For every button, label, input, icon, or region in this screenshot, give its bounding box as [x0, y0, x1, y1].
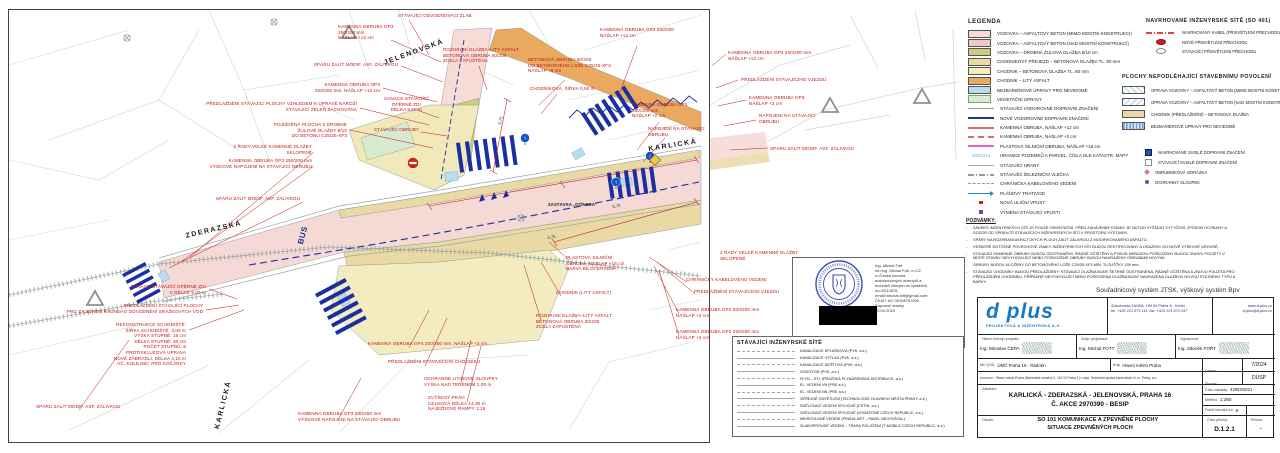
- legend-label: CHODNÍK (PŘEDLÁŽDĚNÍ) – BETONOVÁ DLAŽBA: [1151, 112, 1249, 117]
- note-text: SPÁRY NA ROZHRANÍ ASFALTOVÝCH PLOCH ZALÍ…: [973, 238, 1148, 243]
- annotation: 2 ŘADY VELKÉ KAMENNÉ DLAŽBY SKLOPENÉ: [720, 250, 798, 261]
- annotation: KAMENNÁ OBRUBA OP3 200/250 mm VÝŠKOVÉ NA…: [298, 411, 400, 422]
- legend-row: NOVÁ ULIČNÍ VPUST: [968, 198, 1132, 207]
- format-count-value: 8: [1236, 408, 1238, 413]
- stage-label-cell: Stupeň:: [1203, 372, 1243, 385]
- swatch-mastic-icon: [968, 77, 991, 85]
- proposed-cable-line-icon: [1146, 32, 1176, 34]
- order-number-value: 42063/2021: [1230, 387, 1252, 392]
- swatch-repair-asphalt-bridge-icon: [1122, 98, 1145, 106]
- annotation: KAMENNÁ OBRUBA OP4 200/250 mm, NÁŠLAP +2…: [368, 341, 487, 347]
- existing-vertical-sign-icon: [1145, 159, 1152, 166]
- no-entry-sign-icon: [408, 158, 418, 168]
- legend-label: HRANICE POZEMKŮ A PARCEL, ČÍSLA DLE KATA…: [1000, 153, 1128, 158]
- utility-line-icon: [737, 351, 795, 352]
- annotation: KAMENNÁ OBRUBA OP3 250/200 mm NÁŠLAP +2 …: [632, 102, 687, 119]
- company-phones: tel. +420 221 873 111, fax. +420 221 873…: [1111, 309, 1209, 314]
- designer-cell: Zodp. projektant: Ing. Michal FOTT: [1077, 335, 1176, 359]
- utility-line-icon: [737, 358, 795, 359]
- engineer-stamp-box: Ing. Michal Fott cn=Ing. Michal Fott, c=…: [792, 257, 965, 348]
- swatch-crossing-icon: [968, 58, 991, 66]
- signs-legend-panel: NAVRHOVANÉ SVISLÉ DOPRAVNÍ ZNAČENÍ STÁVA…: [1143, 147, 1245, 187]
- swatch-vegetation-icon: [968, 95, 991, 103]
- legend-row: STÁVAJÍCÍ SVISLÉ DOPRAVNÍ ZNAČENÍ: [1143, 157, 1245, 167]
- copy-number-cell: Č. kopie:: [1247, 406, 1275, 416]
- protective-bollard-icon: [1145, 180, 1149, 184]
- legend-row: CHRÁNIČKA KABELOVÉHO VEDENÍ: [968, 179, 1132, 188]
- author-cell: Vypracoval: Ing. Zdeněk FOŘT: [1176, 335, 1275, 359]
- company-address-cell: Sokolovská 16/45A, 186 00 Praha 8 - Karl…: [1108, 298, 1213, 335]
- scale-label: Měřítko:: [1203, 397, 1220, 403]
- legend-row: NAVRHOVANÉ SVISLÉ DOPRAVNÍ ZNAČENÍ: [1143, 147, 1245, 157]
- line-existing-edge-icon: [968, 165, 994, 166]
- title-block: d plus PROJEKTOVÁ A INŽENÝRSKÁ A.S. Soko…: [977, 297, 1274, 438]
- utility-line-icon: [737, 405, 795, 406]
- annotation: SPÁRU ZALÍT MODIF. ASF. ZÁLIVKOU: [216, 196, 300, 202]
- legend-row: 2905/214HRANICE POZEMKŮ A PARCEL, ČÍSLA …: [968, 151, 1132, 160]
- legend-panel: LEGENDA VOZOVKA – ASFALTOVÝ BETON (MIMO …: [968, 18, 1132, 217]
- legend-label: PLÁŇOVÝ TRATIVOD: [1000, 191, 1045, 196]
- scale-value: 1:250: [1220, 397, 1232, 402]
- line-railway-icon: [968, 174, 994, 176]
- plan-sheet: ↑ ↑ ↑: [0, 0, 1280, 453]
- existing-networks-title: STÁVAJÍCÍ INŽENÝRSKÉ SÍTĚ: [737, 340, 959, 346]
- format-count-label: Počet formátů A4:: [1203, 407, 1236, 413]
- utility-label: SDĚLOVACÍ VEDENÍ SPOJOVÉ (VODAFONE CZECH…: [800, 411, 923, 415]
- swatch-granite-icon: [968, 48, 991, 56]
- content-line1: SO 101 KOMUNIKACE A ZPEVNĚNÉ PLOCHY: [980, 417, 1200, 425]
- utility-label: MIKROVLNNÉ VEDENÍ (PRAHA.NET – PAVEL NEC…: [800, 417, 905, 421]
- annotation: PŘEDLÁŽDĚNÍ STÁVAJÍCÍHO CHODNÍKU: [388, 359, 480, 365]
- format-count-cell: Počet formátů A4: 8: [1203, 406, 1247, 416]
- svg-text:↑: ↑: [615, 180, 618, 186]
- utility-row: KANALIZACE VÝTLAK (PVK, a.s.): [737, 355, 959, 362]
- legend-row: CHODNÍK – BETONOVÁ DLAŽBA TL. 60 mm: [968, 67, 1132, 76]
- utility-line-icon: [737, 364, 795, 365]
- utility-label: EL. VEDENÍ NN (PRE a.s.): [800, 390, 846, 394]
- utility-row: MIKROVLNNÉ VEDENÍ (PRAHA.NET – PAVEL NEC…: [737, 416, 959, 423]
- municipality-value: ÚMČ Praha 16 - Radotín: [997, 363, 1045, 368]
- legend-label: STÁVAJÍCÍ SVISLÉ DOPRAVNÍ ZNAČENÍ: [1158, 160, 1237, 165]
- designer-name: Ing. Michal FOTT: [1079, 346, 1114, 351]
- utility-line-icon: [737, 419, 795, 420]
- annotation: ZVÝŠENÝ PRÁH CELKOVÁ DÉLKA 14,30 m NÁJEZ…: [428, 395, 486, 412]
- annotation: PŘEDLÁŽDĚNÍ STÁVAJÍCÍHO VJEZDU: [694, 289, 779, 295]
- legend-label: BEZBARIÉROVÉ ÚPRAVY PRO NEVIDOMÉ: [1151, 124, 1235, 129]
- blue-arrow-sign-icon: ↑: [521, 134, 530, 146]
- revision-label: Revize:: [1249, 417, 1273, 423]
- line-new-marking-icon: [968, 117, 994, 119]
- municipality-cell: MÚ (OÚ): ÚMČ Praha 16 - Radotín: [978, 359, 1111, 372]
- note-item: -STÁVAJÍCÍ KAMENNÉ OBRUBY BUDOU ODSTRANĚ…: [966, 252, 1236, 261]
- legend-row: VOZOVKA – ASFALTOVÝ BETON (NAD MOSTNÍ KO…: [968, 38, 1132, 47]
- legend-label: STÁVAJÍCÍ ŽELEZNIČNÍ VLEČKA: [1000, 172, 1069, 177]
- content-cell: Obsah: SO 101 KOMUNIKACE A ZPEVNĚNÉ PLOC…: [978, 416, 1203, 437]
- annotation: KAMENNÁ OBRUBA OP3 250/200 mm VÝŠKOVÉ NA…: [210, 158, 312, 169]
- legend-label: VOZOVKA – DROBNÁ ŽULOVÁ DLAŽBA 8/10 cm: [997, 50, 1098, 55]
- utility-row: KANALIZACE DEŠŤOVÁ (PVK, a.s.): [737, 362, 959, 369]
- utility-row: EL. VEDENÍ VN (PRE a.s.): [737, 382, 959, 389]
- bus-stop-label: ZASTÁVKA „OTÍNSKÁ“: [548, 202, 597, 207]
- chief-engineer-name: Ing. Miroslav ČEPA: [980, 346, 1019, 351]
- legend-row: KAMENNÁ OBRUBA, NÁŠLAP +2 cm: [968, 132, 1132, 141]
- utility-line-icon: [737, 412, 795, 413]
- swatch-tactile-repair-icon: [1122, 122, 1145, 130]
- stage-value: DUSP: [1252, 375, 1266, 381]
- legend-row: NOVÉ PŘISVĚTLENÍ PŘECHODU: [1146, 37, 1280, 46]
- municipality-label: MÚ (OÚ):: [978, 362, 997, 368]
- swatch-tactile-icon: [968, 86, 991, 94]
- company-logo-cell: d plus PROJEKTOVÁ A INŽENÝRSKÁ A.S.: [978, 298, 1108, 335]
- utility-line-icon: [737, 392, 795, 393]
- legend-label: NOVÉ PŘISVĚTLENÍ PŘECHODU: [1182, 40, 1247, 45]
- no-permit-panel: PLOCHY NEPODLÉHAJÍCÍ STAVEBNÍMU POVOLENÍ…: [1122, 74, 1280, 132]
- line-drain-arrow-icon: [968, 190, 994, 197]
- legend-label: OPRAVA VOZOVKY – ASFALTOVÝ BETON (NAD MO…: [1151, 100, 1280, 105]
- new-inlet-icon: [968, 199, 994, 206]
- utility-line-icon: [737, 385, 795, 386]
- date-value: 7/2024: [1251, 362, 1266, 368]
- legend-row: STÁVAJÍCÍ HRANY: [968, 160, 1132, 169]
- utility-label: KANALIZACE VÝTLAK (PVK, a.s.): [800, 356, 859, 360]
- proposed-networks-panel: NAVRHOVANÉ INŽENÝRSKÉ SÍTĚ (SO 401) NAVR…: [1146, 18, 1280, 56]
- legend-label: CHRÁNIČKA KABELOVÉHO VEDENÍ: [1000, 181, 1076, 186]
- legend-row: OBRUBNÍKOVÁ ODRAZKA: [1143, 167, 1245, 177]
- legend-label: OPRAVA VOZOVKY – ASFALTOVÝ BETON (MIMO M…: [1151, 88, 1280, 93]
- legend-row: BEZBARIÉROVÉ ÚPRAVY PRO NEVIDOMÉ: [968, 85, 1132, 94]
- annotation: KAMENNÁ OBRUBA OP3 250/200 mm NÁŠLAP +2 …: [676, 329, 759, 340]
- date-value-cell: 7/2024: [1243, 359, 1275, 372]
- legend-title: LEGENDA: [968, 18, 1132, 25]
- utility-row: KANALIZACE SPLAŠKOVÁ (PVK, a.s.): [737, 348, 959, 355]
- signature-scribble: [1219, 342, 1249, 354]
- annotation: SANACE STÁVAJÍCÍ OPĚRNÉ ZDI V DÉLCE 5,00…: [131, 284, 206, 295]
- region-label: Kraj:: [1111, 362, 1122, 368]
- note-text: OBRUBY BUDOU ULOŽENY DO BETONOVÉHO LOŽE …: [973, 263, 1140, 268]
- legend-row: BEZBARIÉROVÉ ÚPRAVY PRO NEVIDOMÉ: [1122, 120, 1280, 132]
- legend-label: BEZBARIÉROVÉ ÚPRAVY PRO NEVIDOMÉ: [997, 88, 1088, 93]
- project-title-line2: Č. AKCE 2970390 - BESIP: [980, 401, 1200, 410]
- signature-scribble: [1022, 342, 1052, 354]
- legend-row: OCHRANNÝ SLOUPEK: [1143, 177, 1245, 187]
- new-vertical-sign-icon: [1145, 149, 1152, 156]
- note-text: STÁVAJÍCÍ CHODNÍKY BUDOU PŘEDLÁŽDĚNY: ST…: [973, 270, 1236, 284]
- swatch-asphalt-icon: [968, 30, 991, 38]
- drawing-frame: ↑ ↑ ↑: [8, 9, 710, 443]
- note-item: -SPÁRY NA ROZHRANÍ ASFALTOVÝCH PLOCH ZAL…: [966, 238, 1236, 243]
- legend-row: STÁVAJÍCÍ ŽELEZNIČNÍ VLEČKA: [968, 170, 1132, 179]
- annotation: PŘEDLÁŽDĚNÍ STÁVAJÍCÍHO VJEZDU: [741, 77, 826, 83]
- utility-label: SDĚLOVACÍ VEDENÍ SPOJOVÉ (CETIN, a.s.): [800, 404, 879, 408]
- company-subtitle: PROJEKTOVÁ A INŽENÝRSKÁ A.S.: [986, 324, 1099, 328]
- redaction-box: [819, 306, 877, 325]
- utility-row: VODOVOD (PVK, a.s.): [737, 368, 959, 375]
- annotation: CHODNÍK (LITÝ ASFALT): [556, 290, 611, 296]
- no-permit-title: PLOCHY NEPODLÉHAJÍCÍ STAVEBNÍMU POVOLENÍ: [1122, 74, 1280, 80]
- utility-row: VEŘEJNÉ OSVĚTLENÍ (TECHNOLOGIE HLAVNÍHO …: [737, 396, 959, 403]
- revision-cell: Revize: –: [1247, 416, 1275, 437]
- line-curb12-icon: [968, 127, 994, 129]
- legend-label: NAVRHOVANÝ KABEL (PŘISVĚTLENÍ PŘECHODU): [1182, 30, 1280, 35]
- utility-label: KANALIZACE DEŠŤOVÁ (PVK, a.s.): [800, 363, 862, 367]
- utility-row: SDĚLOVACÍ VEDENÍ SPOJOVÉ (CETIN, a.s.): [737, 402, 959, 409]
- utility-label: PLYN – STL (PRAŽSKÁ PLYNÁRENSKÁ DISTRIBU…: [800, 377, 903, 381]
- drawing-number-value: D.1.2.1: [1205, 426, 1244, 433]
- legend-label: CHODNÍK – LITÝ ASFALT: [997, 78, 1050, 83]
- notes-title: POZNÁMKY:: [966, 218, 1236, 224]
- legend-label: NOVÉ VODOROVNÉ DOPRAVNÍ ZNAČENÍ: [1000, 116, 1089, 121]
- annotation: SPÁRU ZALÍT MODIF. ASF. ZÁLIVKOU: [314, 62, 398, 68]
- drawing-number-label: Číslo přílohy:: [1205, 417, 1244, 423]
- annotation: PŘEDLÁŽDĚNÍ STÁVAJÍCÍ PLOCHY PRO ZAJIŠTĚ…: [67, 303, 203, 314]
- annotation: STÁVAJÍCÍ OBRUBY: [374, 127, 419, 133]
- legend-row: CHODNÍK (PŘEDLÁŽDĚNÍ) – BETONOVÁ DLAŽBA: [1122, 108, 1280, 120]
- annotation: KAMENNÁ OBRUBA OP3 250/200 NÁŠLAP +12 cm: [600, 27, 674, 38]
- existing-networks-panel: STÁVAJÍCÍ INŽENÝRSKÉ SÍTĚ KANALIZACE SPL…: [732, 336, 964, 437]
- investor-cell: Investor: Hlavní město Praha (Mariánské …: [978, 372, 1203, 385]
- legend-label: OCHRANNÝ SLOUPEK: [1155, 180, 1200, 185]
- legend-row: OPRAVA VOZOVKY – ASFALTOVÝ BETON (MIMO M…: [1122, 84, 1280, 96]
- investor-value: Hlavní město Praha (Mariánské náměstí 2,…: [996, 376, 1157, 380]
- legend-label: VÝMĚNA STÁVAJÍCÍ VPUSTI: [1000, 210, 1060, 215]
- legend-row: CHODNÍK – LITÝ ASFALT: [968, 76, 1132, 85]
- ckait-stamp-icon: [793, 258, 873, 346]
- note-item: -STÁVAJÍCÍ CHODNÍKY BUDOU PŘEDLÁŽDĚNY: S…: [966, 270, 1236, 284]
- legend-label: NAVRHOVANÉ SVISLÉ DOPRAVNÍ ZNAČENÍ: [1158, 150, 1245, 155]
- company-email: d-plus@d-plus.cz: [1216, 309, 1272, 314]
- proposed-networks-title: NAVRHOVANÉ INŽENÝRSKÉ SÍTĚ (SO 401): [1146, 18, 1280, 24]
- drawing-number-cell: Číslo přílohy: D.1.2.1: [1203, 416, 1247, 437]
- note-item: -OBRUBY BUDOU ULOŽENY DO BETONOVÉHO LOŽE…: [966, 263, 1236, 268]
- line-curb2-icon: [968, 136, 994, 138]
- note-text: VEŠKERÉ DOTČENÉ POVRCHOVÉ ZNAKY INŽENÝRS…: [973, 245, 1219, 250]
- annotation: REKONSTRUKCE SCHODIŠTĚ: ŠÍŘKA SCHODIŠTĚ:…: [114, 322, 186, 367]
- company-logo: d plus: [986, 301, 1099, 322]
- author-name: Ing. Zdeněk FOŘT: [1178, 346, 1216, 351]
- legend-label: STÁVAJÍCÍ PŘISVĚTLENÍ PŘECHODU: [1182, 49, 1256, 54]
- swatch-repair-asphalt-icon: [1122, 86, 1145, 94]
- legend-label: KAMENNÁ OBRUBA, NÁŠLAP +2 cm: [1000, 134, 1076, 139]
- annotation: KAMENNÁ OBRUBA OP3 250/200 mm NÁŠLAP +12…: [728, 50, 811, 61]
- utility-row: PLYN – STL (PRAŽSKÁ PLYNÁRENSKÁ DISTRIBU…: [737, 375, 959, 382]
- annotation: BETONOVÁ OBRUBA 60/200 DO BETONOVÉHO LOŽ…: [528, 57, 611, 74]
- order-number-cell: Číslo zakázky: 42063/2021: [1203, 385, 1275, 395]
- annotation: PŘEDLÁŽDĚNÍ STÁVAJÍCÍ PLOCHY VZHLEDEM K …: [206, 101, 357, 112]
- legend-row: KAMENNÁ OBRUBA, NÁŠLAP +12 cm: [968, 123, 1132, 132]
- utility-label: VODOVOD (PVK, a.s.): [800, 370, 839, 374]
- sidewalk-area: [331, 250, 569, 355]
- annotation: SPÁRU ZALÍT MODIF. ASF. ZÁLIVKOU: [770, 146, 854, 152]
- legend-label: KAMENNÁ OBRUBA, NÁŠLAP +12 cm: [1000, 125, 1079, 130]
- legend-row: VOZOVKA – DROBNÁ ŽULOVÁ DLAŽBA 8/10 cm: [968, 48, 1132, 57]
- stamp-line: 20.09.2024: [875, 308, 961, 313]
- annotation: NAPOJENÍ NA STÁVAJÍCÍ OBRUBU: [648, 126, 705, 137]
- notes-panel: POZNÁMKY: -ZÁKRES INŽENÝRSKÝCH SÍTÍ JE P…: [966, 218, 1236, 287]
- stage-value-cell: DUSP: [1243, 372, 1275, 385]
- utility-line-icon: [737, 371, 795, 372]
- annotation: 2 ŘADY VELKÉ KAMENNÉ DLAŽBY SKLOPENÉ: [234, 144, 312, 155]
- line-plastic-curb-icon: [968, 145, 994, 147]
- note-item: -VEŠKERÉ DOTČENÉ POVRCHOVÉ ZNAKY INŽENÝR…: [966, 245, 1236, 250]
- legend-label: PLASTOVÁ SILNIČNÍ OBRUBA, NÁŠLAP +16 cm: [1000, 144, 1101, 149]
- annotation: SANACE STÁVAJÍCÍ OPĚRNÉ ZDI DÉLKA 8,50 m: [384, 96, 429, 113]
- note-text: STÁVAJÍCÍ KAMENNÉ OBRUBY BUDOU ODSTRANĚN…: [973, 252, 1236, 261]
- annotation: NAPOJENÍ NA STÁVAJÍCÍ OBRUBU: [759, 113, 816, 124]
- note-item: -ZÁKRES INŽENÝRSKÝCH SÍTÍ JE POUZE ORIEN…: [966, 226, 1236, 235]
- revision-value: –: [1249, 426, 1273, 432]
- legend-label: VEGETAČNÍ ÚPRAVY: [997, 97, 1042, 102]
- signature-scribble: [1117, 342, 1147, 354]
- company-web-cell: www.d-plus.cz d-plus@d-plus.cz: [1213, 298, 1275, 335]
- existing-crossing-light-icon: [1146, 48, 1176, 55]
- legend-label: VOZOVKA – ASFALTOVÝ BETON (NAD MOSTNÍ KO…: [997, 41, 1129, 46]
- legend-label: CHODNÍK – BETONOVÁ DLAŽBA TL. 60 mm: [997, 69, 1089, 74]
- legend-row: NOVÉ VODOROVNÉ DOPRAVNÍ ZNAČENÍ: [968, 114, 1132, 123]
- legend-label: STÁVAJÍCÍ VODOROVNÉ DOPRAVNÍ ZNAČENÍ: [1000, 106, 1098, 111]
- region-value: Hlavní město Praha: [1122, 363, 1161, 368]
- utility-row: SDĚLOVACÍ VEDENÍ SPOJOVÉ (VODAFONE CZECH…: [737, 409, 959, 416]
- line-cable-duct-icon: [968, 183, 994, 184]
- annotation: PLASTOVÁ SILNIČNÍ OBRUBA, NÁŠLAP +16 cm …: [566, 255, 625, 272]
- utility-line-icon: [737, 378, 795, 379]
- annotation: OCHRANNÉ LITINOVÉ SLOUPKY VÝŠKA NAD TERÉ…: [424, 376, 498, 387]
- content-line2: SITUACE ZPEVNĚNÝCH PLOCH: [980, 425, 1200, 433]
- utility-label: EL. VEDENÍ VN (PRE a.s.): [800, 383, 846, 387]
- investor-label: Investor:: [978, 375, 996, 381]
- legend-label: CHODNÍKOVÝ PŘEJEZD – BETONOVÁ DLAŽBA TL.…: [997, 59, 1120, 64]
- annotation: KAMENNÁ OBRUBA OP3 250/200 mm NÁŠLAP +12…: [338, 24, 393, 41]
- legend-row: VÝMĚNA STÁVAJÍCÍ VPUSTI: [968, 207, 1132, 216]
- legend-row: NAVRHOVANÝ KABEL (PŘISVĚTLENÍ PŘECHODU): [1146, 28, 1280, 37]
- legend-row: STÁVAJÍCÍ PŘISVĚTLENÍ PŘECHODU: [1146, 47, 1280, 56]
- utility-line-icon: [737, 426, 795, 427]
- legend-label: VOZOVKA – ASFALTOVÝ BETON (MIMO MOSTNÍ K…: [997, 31, 1132, 36]
- utility-line-icon: [737, 398, 795, 399]
- swatch-asphalt-bridge-icon: [968, 39, 991, 47]
- region-cell: Kraj: Hlavní město Praha: [1111, 359, 1203, 372]
- annotation: ROZHRANÍ DLAŽBA–LITÝ ASFALT BETONOVÁ OBR…: [443, 47, 519, 64]
- replaced-inlet-icon: [968, 209, 994, 216]
- utility-label: SLABOPROUDÉ VEDENÍ – TRASA POLOŽENÍ (T-M…: [800, 424, 945, 428]
- map-triangles: [822, 89, 930, 112]
- annotation: KAMENNÁ OBRUBA OP3 250/200 mm, NÁŠLAP +1…: [315, 82, 380, 93]
- annotation: POJÍŽDĚNÁ PLOCHA Z DROBNÉ ŽULOVÉ DLAŽBY …: [274, 122, 347, 139]
- legend-row: OPRAVA VOZOVKY – ASFALTOVÝ BETON (NAD MO…: [1122, 96, 1280, 108]
- chief-engineer-cell: Hlavní inženýr projektu: Ing. Miroslav Č…: [978, 335, 1077, 359]
- swatch-sidewalk-icon: [968, 67, 991, 75]
- annotation: CHRÁNIČKY KABELOVÉHO VEDENÍ: [686, 277, 767, 283]
- site-plan-canvas: ↑ ↑ ↑: [9, 10, 709, 442]
- signature-text: Ing. Michal Fott cn=Ing. Michal Fott, c=…: [875, 263, 961, 313]
- legend-row: PLASTOVÁ SILNIČNÍ OBRUBA, NÁŠLAP +16 cm: [968, 142, 1132, 151]
- scale-cell: Měřítko: 1:250: [1203, 395, 1275, 405]
- new-crossing-light-icon: [1146, 39, 1176, 46]
- curb-reflector-icon: [1144, 169, 1150, 175]
- project-title-line1: KARLICKÁ - ZDERAZSKÁ - JELENOVSKÁ, PRAHA…: [980, 392, 1200, 401]
- legend-row: CHODNÍKOVÝ PŘEJEZD – BETONOVÁ DLAŽBA TL.…: [968, 57, 1132, 66]
- legend-row: STÁVAJÍCÍ VODOROVNÉ DOPRAVNÍ ZNAČENÍ: [968, 104, 1132, 113]
- legend-row: VOZOVKA – ASFALTOVÝ BETON (MIMO MOSTNÍ K…: [968, 29, 1132, 38]
- project-cell: Zakázka: KARLICKÁ - ZDERAZSKÁ - JELENOVS…: [978, 385, 1203, 416]
- content-label: Obsah:: [980, 417, 996, 423]
- order-number-label: Číslo zakázky:: [1203, 387, 1230, 393]
- utility-label: VEŘEJNÉ OSVĚTLENÍ (TECHNOLOGIE HLAVNÍHO …: [800, 397, 927, 401]
- annotation: CHODNÍKOVÁ, ŠÍŘKA 0,50 m: [530, 86, 595, 92]
- annotation: KAMENNÁ OBRUBA OP3 NÁŠLAP +2 cm: [749, 95, 804, 106]
- legend-label: NOVÁ ULIČNÍ VPUST: [1000, 200, 1045, 205]
- annotation: ROZHRANÍ DLAŽBA–LITÝ ASFALT BETONOVÁ OBR…: [536, 313, 612, 330]
- parcel-number-sample: 2905/214: [968, 153, 994, 158]
- swatch-repaving-icon: [1122, 110, 1145, 118]
- utility-label: KANALIZACE SPLAŠKOVÁ (PVK, a.s.): [800, 349, 867, 353]
- annotation: KAMENNÁ OBRUBA OP4 200/200 mm NÁŠLAP +2 …: [676, 307, 759, 318]
- legend-row: PLÁŇOVÝ TRATIVOD: [968, 189, 1132, 198]
- date-label-cell: Datum:: [1203, 359, 1243, 372]
- annotation: STÁVAJÍCÍ ODVODŇOVACÍ ŽLAB: [398, 13, 472, 19]
- utility-row: SLABOPROUDÉ VEDENÍ – TRASA POLOŽENÍ (T-M…: [737, 423, 959, 430]
- coordinate-system-note: Souřadnicový systém JTSK, výškový systém…: [1096, 287, 1240, 294]
- line-existing-marking-icon: [968, 108, 994, 109]
- legend-row: VEGETAČNÍ ÚPRAVY: [968, 95, 1132, 104]
- annotation: SPÁRU ZALÍT MODIF. ASF. ZÁLIVKOU: [36, 404, 120, 410]
- note-text: ZÁKRES INŽENÝRSKÝCH SÍTÍ JE POUZE ORIENT…: [973, 226, 1236, 235]
- legend-label: STÁVAJÍCÍ HRANY: [1000, 163, 1039, 168]
- utility-row: EL. VEDENÍ NN (PRE a.s.): [737, 389, 959, 396]
- legend-label: OBRUBNÍKOVÁ ODRAZKA: [1155, 170, 1207, 175]
